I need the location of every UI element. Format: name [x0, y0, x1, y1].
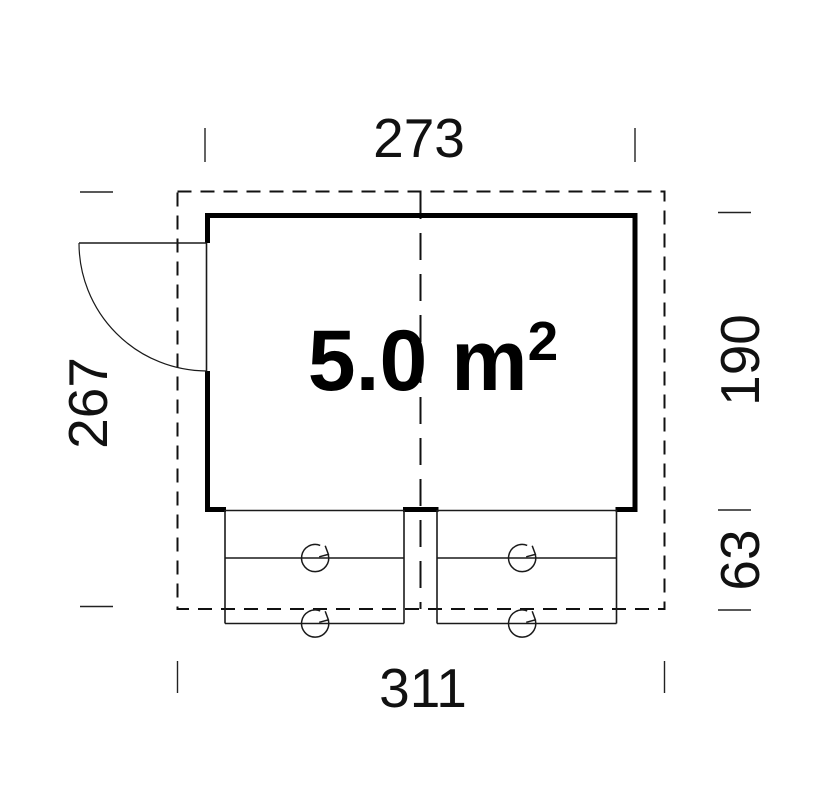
dim-label-top-width: 273	[373, 107, 465, 169]
dim-label-right-room-depth: 190	[709, 314, 771, 406]
front-right-door-panel	[437, 510, 617, 624]
area-exponent: 2	[528, 310, 559, 372]
area-value: 5.0 m	[308, 313, 528, 409]
dim-label-left-depth: 267	[57, 357, 119, 449]
area-label: 5.0 m2	[308, 310, 559, 409]
floor-plan-drawing: 273 311 267 190 63 5.0 m2	[0, 0, 832, 800]
door-swing-arc	[79, 243, 207, 371]
side-door	[79, 243, 207, 371]
front-left-door-panel	[225, 510, 404, 624]
dim-label-right-terrace-depth: 63	[709, 529, 771, 590]
floor-plan-canvas: 273 311 267 190 63 5.0 m2	[0, 0, 832, 800]
dim-label-bottom-width: 311	[379, 657, 467, 719]
